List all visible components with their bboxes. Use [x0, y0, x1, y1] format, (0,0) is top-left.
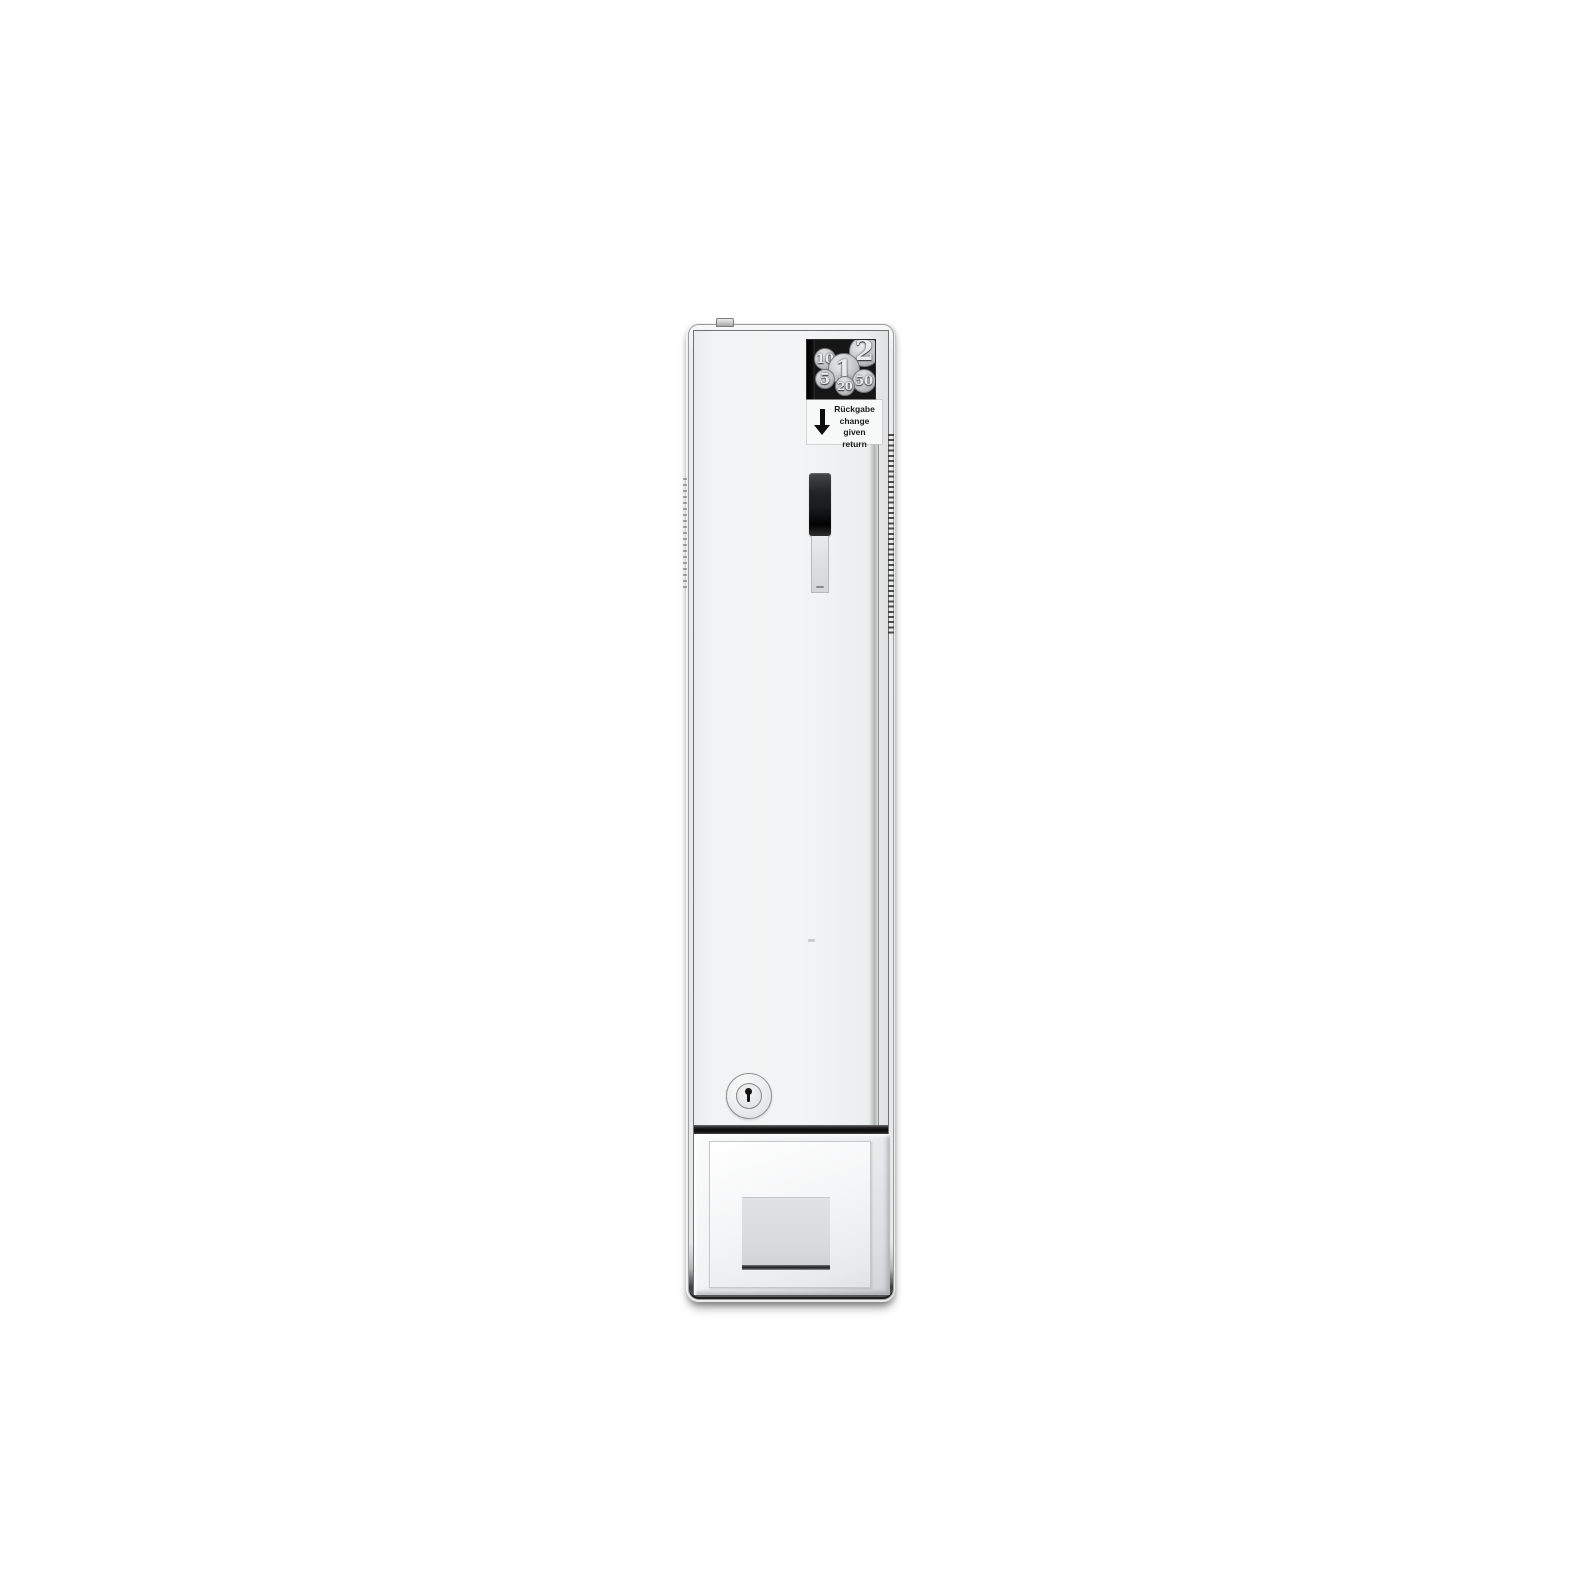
tray-door	[709, 1141, 871, 1288]
down-arrow-head	[814, 425, 830, 435]
panel-separator	[694, 1125, 888, 1134]
label-line-return: return	[829, 439, 880, 451]
coin-5-icon: 5	[815, 369, 835, 389]
label-line-german: Rückgabe	[829, 404, 880, 416]
left-hinge-serration	[683, 478, 687, 590]
return-label-text: Rückgabe change given return	[829, 404, 880, 450]
coin-mechanism-front: 10 2 1 50 5 20 Rückgabe change given ret…	[686, 322, 896, 1302]
top-mount-tab	[716, 318, 734, 327]
coin-50-icon: 50	[852, 369, 875, 393]
coin-return-flap[interactable]	[742, 1197, 830, 1270]
product-photo-stage: 10 2 1 50 5 20 Rückgabe change given ret…	[0, 0, 1572, 1572]
keyhole-lock[interactable]	[726, 1073, 772, 1119]
coin-slide-handle[interactable]	[811, 536, 829, 593]
coin-slide-slot[interactable]	[809, 473, 831, 536]
front-door-panel: 10 2 1 50 5 20 Rückgabe change given ret…	[693, 330, 889, 1294]
rivet-mark	[808, 939, 815, 942]
down-arrow-stem	[820, 409, 825, 425]
coin-wheel-knurled-edge[interactable]	[888, 434, 894, 634]
coin-20-icon: 20	[835, 376, 855, 396]
coin-denomination-graphic: 10 2 1 50 5 20	[807, 340, 875, 399]
door-right-seam	[869, 431, 879, 1125]
down-arrow-icon	[814, 409, 830, 436]
keyhole-icon	[736, 1083, 762, 1109]
coin-return-tray	[694, 1134, 890, 1295]
coin-entry-slot[interactable]	[807, 340, 815, 399]
label-line-english: change given	[829, 416, 880, 439]
change-return-label: Rückgabe change given return	[807, 400, 882, 444]
